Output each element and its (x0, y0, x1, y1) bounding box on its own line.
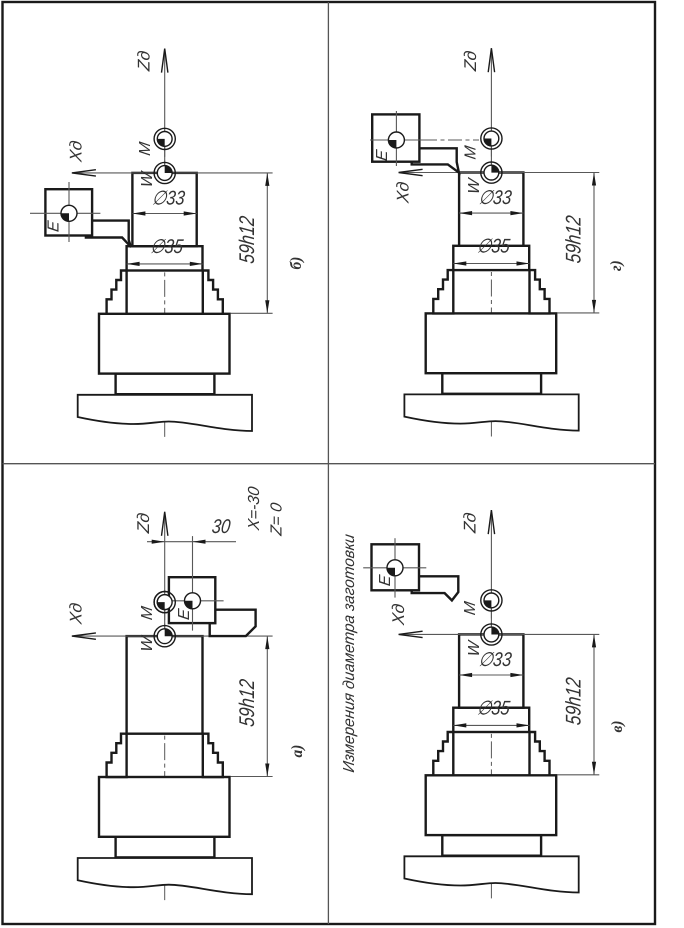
svg-text:M: M (136, 140, 154, 156)
svg-text:Xд: Xд (389, 603, 408, 627)
svg-text:Z= 0: Z= 0 (268, 502, 286, 538)
svg-text:Xд: Xд (394, 181, 413, 205)
svg-text:б): б) (288, 257, 305, 270)
svg-text:в): в) (609, 720, 626, 732)
svg-text:59h12: 59h12 (236, 678, 259, 728)
svg-text:Zд: Zд (135, 50, 154, 73)
svg-text:Измерения диаметра заготовки: Измерения диаметра заготовки (340, 533, 358, 774)
svg-text:а): а) (289, 745, 306, 758)
svg-text:Zд: Zд (461, 50, 480, 73)
svg-text:Xд: Xд (67, 139, 86, 163)
svg-text:∅33: ∅33 (151, 186, 186, 209)
svg-text:59h12: 59h12 (236, 215, 259, 265)
svg-text:г): г) (608, 260, 625, 271)
svg-text:M: M (462, 144, 480, 160)
svg-text:M: M (138, 605, 156, 621)
svg-text:M: M (461, 600, 479, 616)
svg-text:X=-30: X=-30 (245, 485, 263, 532)
svg-text:∅35: ∅35 (149, 235, 185, 258)
svg-text:Xд: Xд (67, 602, 86, 626)
svg-text:Zд: Zд (461, 511, 480, 534)
svg-text:30: 30 (211, 515, 233, 538)
svg-text:59h12: 59h12 (563, 214, 586, 264)
svg-text:∅35: ∅35 (476, 696, 512, 719)
svg-text:∅35: ∅35 (476, 234, 512, 257)
svg-text:Zд: Zд (134, 512, 153, 535)
svg-text:59h12: 59h12 (563, 676, 586, 726)
